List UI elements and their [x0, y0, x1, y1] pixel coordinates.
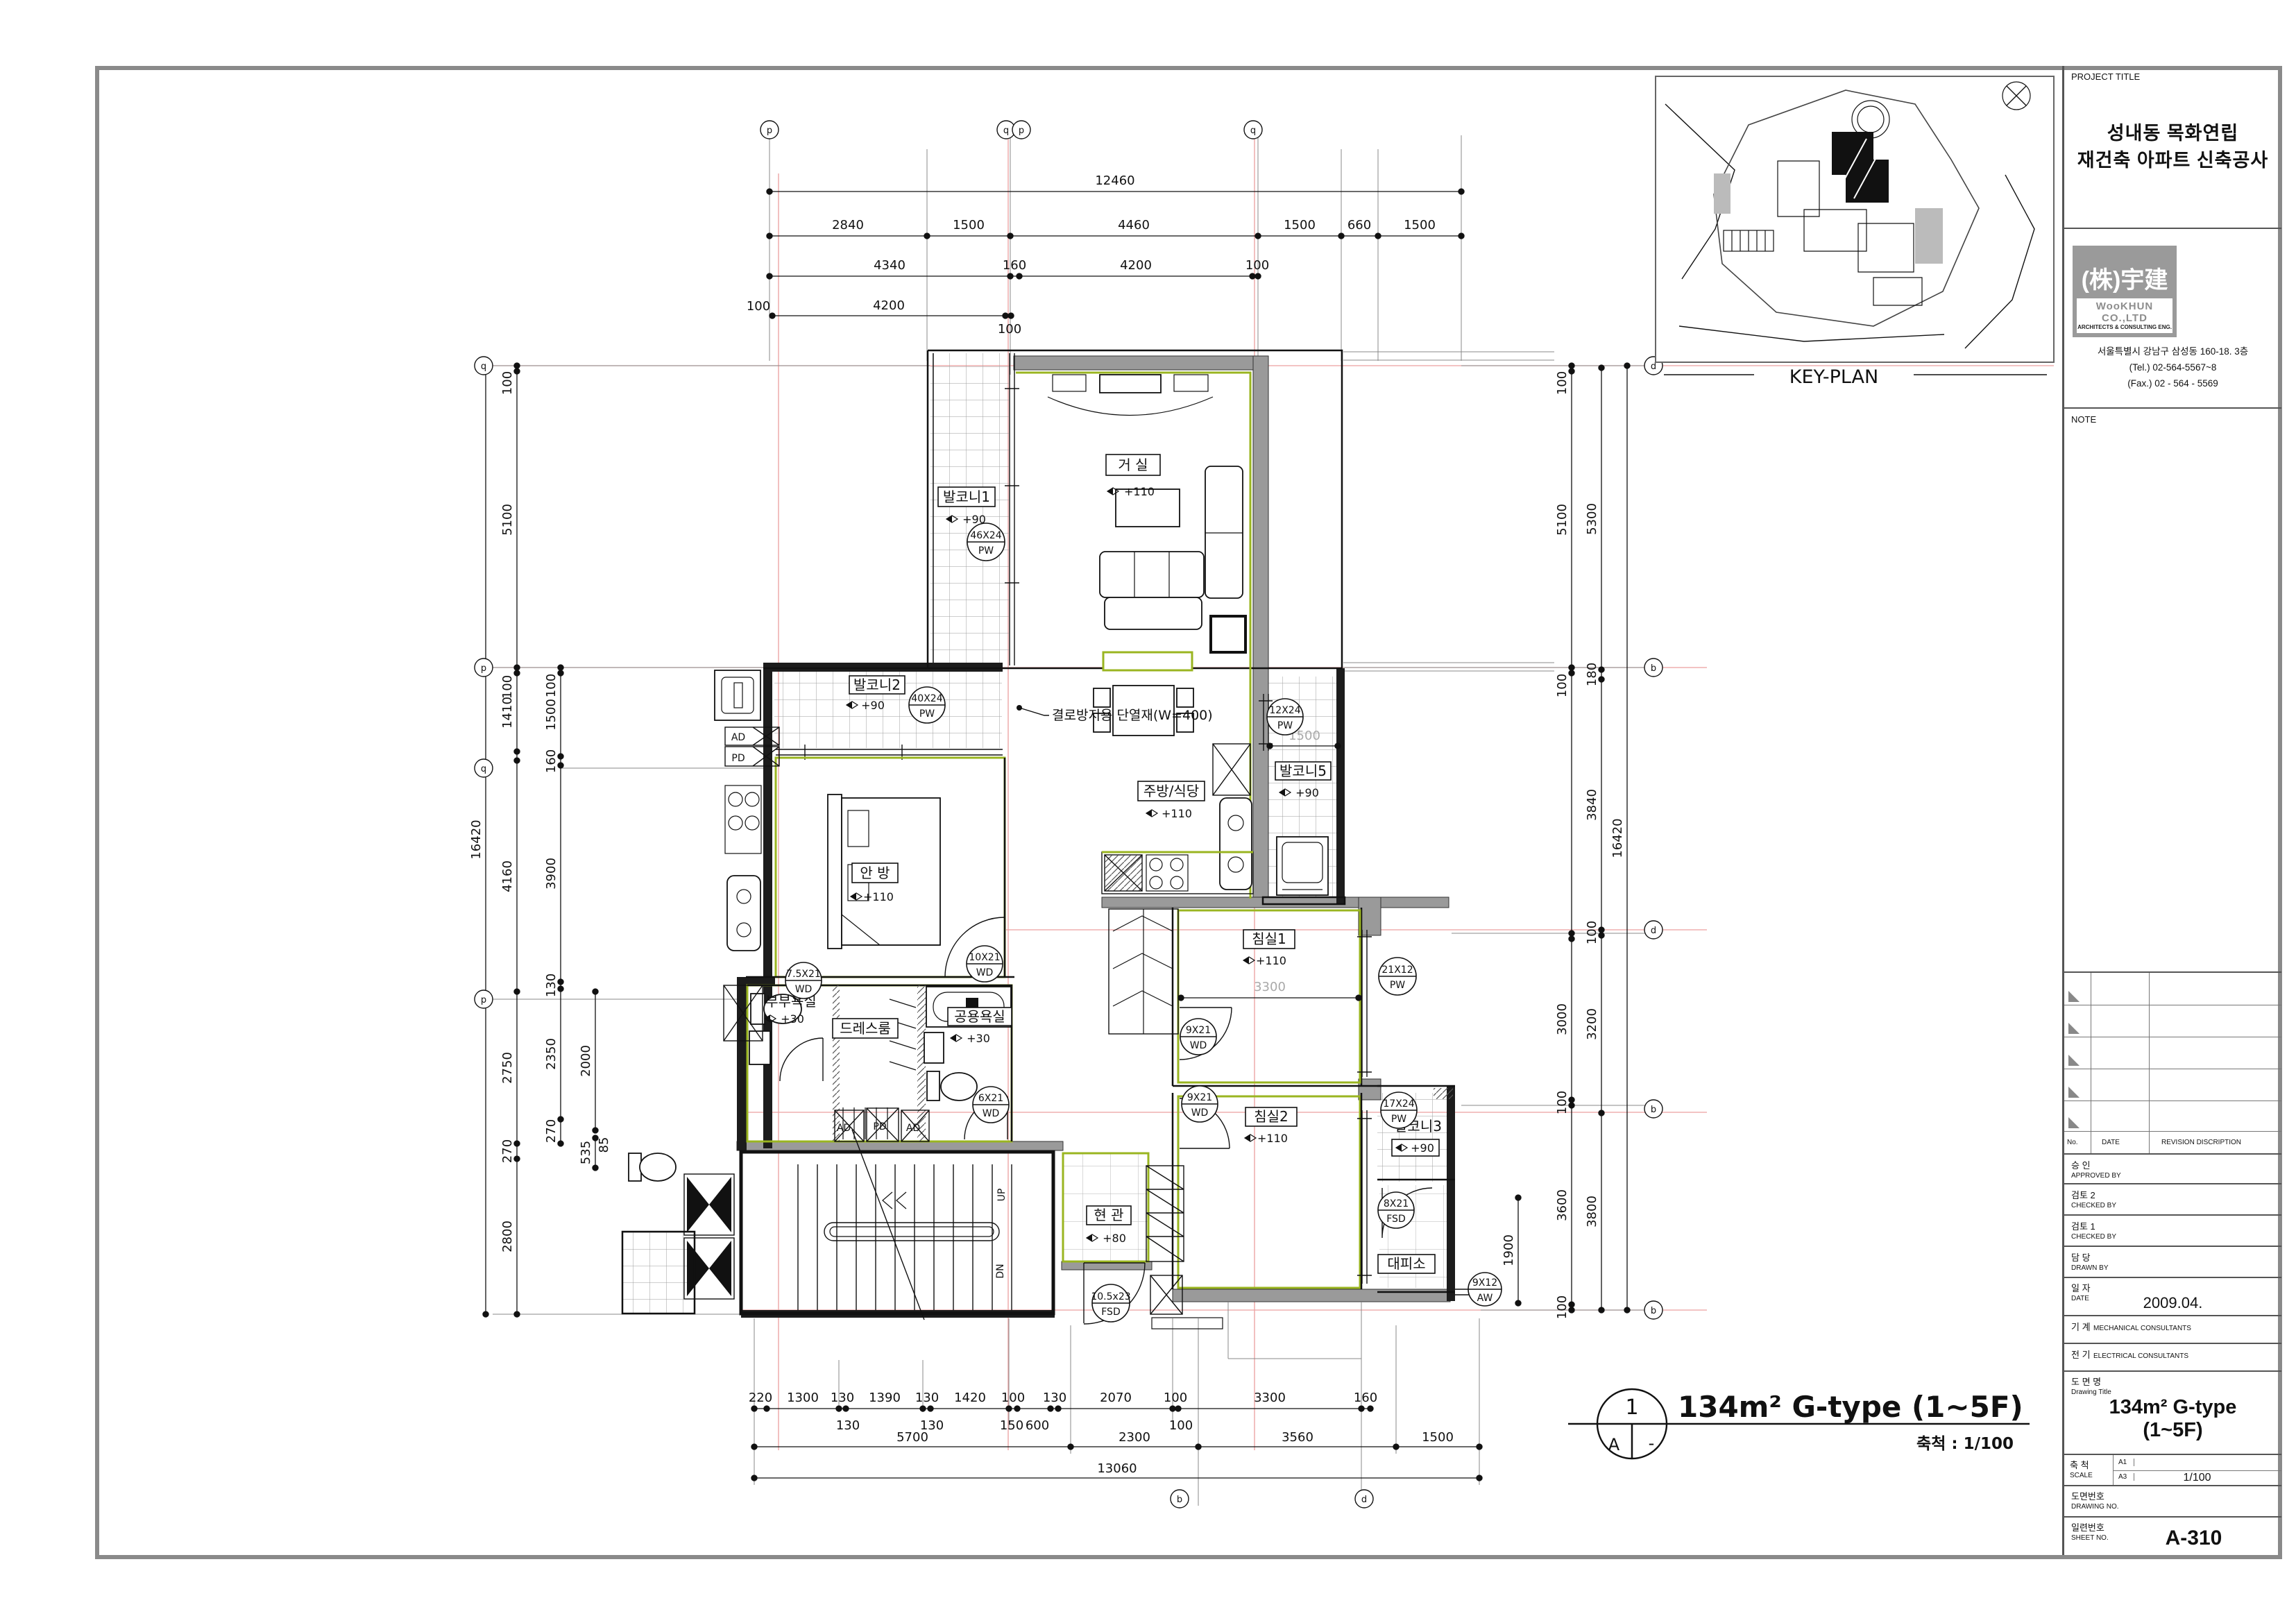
grid-label: p	[1019, 126, 1024, 136]
project-title-section: PROJECT TITLE 성내동 목화연립 재건축 아파트 신축공사	[2064, 66, 2281, 228]
level: +110	[863, 890, 894, 903]
approved-row: 승 인 APPROVED BY	[2064, 1153, 2281, 1183]
window-box	[1174, 375, 1208, 391]
dim: 2350	[544, 1038, 559, 1070]
tag: 9X12AW	[1468, 1273, 1502, 1306]
room-label: 침실2	[1254, 1108, 1289, 1125]
level: +110	[1256, 954, 1286, 967]
tag: 46X24PW	[967, 523, 1005, 561]
caption-scale: 축척 : 1/100	[1916, 1435, 2014, 1453]
room-label: 침실1	[1252, 931, 1286, 947]
duct-shafts: AD PD AD	[835, 1108, 929, 1141]
dim: 2300	[1119, 1430, 1150, 1445]
grid-label: q	[481, 362, 486, 372]
insulation-annotation: 결로방지용 단열재(W=400)	[1052, 708, 1213, 723]
dim: 5300	[1585, 503, 1599, 535]
dim: 3800	[1585, 1196, 1599, 1227]
dim: 16420	[1610, 818, 1625, 858]
dwgno-en: DRAWING NO.	[2064, 1503, 2281, 1511]
dim: 3300	[1254, 1391, 1286, 1405]
wall	[1447, 1086, 1455, 1301]
x-mark	[1213, 744, 1250, 795]
dim: 100	[544, 674, 559, 697]
firm-logo: (株)宇建 WooKHUN CO.,LTD ARCHITECTS & CONSU…	[2073, 246, 2177, 337]
dim: 100	[500, 675, 515, 699]
svg-text:PW: PW	[1391, 1114, 1406, 1125]
dim: 130	[1043, 1391, 1066, 1405]
dim: 85	[597, 1137, 611, 1153]
toilet	[941, 1073, 977, 1101]
tv-console	[1100, 375, 1161, 393]
kitchen-sink	[1220, 798, 1252, 890]
room-label: 발코니5	[1279, 763, 1327, 779]
dim: 100	[1555, 1295, 1570, 1319]
dim: 100	[1245, 258, 1269, 273]
entry-step	[1152, 1318, 1223, 1329]
room-label: 발코니2	[853, 677, 901, 693]
wall	[1336, 668, 1345, 904]
scale-en: SCALE	[2064, 1472, 2113, 1479]
svg-text:17X24: 17X24	[1383, 1098, 1414, 1110]
dim: 130	[544, 974, 559, 997]
level: +90	[861, 699, 885, 712]
mech-kr: 기 계	[2071, 1322, 2091, 1332]
level: +110	[1124, 485, 1155, 498]
keyplan-label: KEY-PLAN	[1789, 366, 1878, 388]
tag: 17X24PW	[1381, 1092, 1417, 1128]
stair-up-label: UP	[996, 1189, 1007, 1202]
ad-label: AD	[731, 732, 745, 743]
toilet-tank	[927, 1071, 939, 1101]
tag: 9X21WD	[1180, 1019, 1216, 1055]
dim: 130	[915, 1391, 939, 1405]
svg-text:WD: WD	[1191, 1107, 1209, 1119]
wardrobe-hangers	[1113, 909, 1173, 1034]
sofa-seats	[1105, 597, 1202, 629]
firm-section: (株)宇建 WooKHUN CO.,LTD ARCHITECTS & CONSU…	[2064, 228, 2281, 407]
rev-date-header: DATE	[2091, 1132, 2149, 1146]
scale-section: 축 척 SCALE A1 A3 1/100	[2064, 1454, 2281, 1485]
project-name-line1: 성내동 목화연립	[2064, 120, 2281, 147]
washer	[1277, 837, 1328, 895]
keyplan-shade	[1714, 173, 1730, 214]
tag: 40X24PW	[909, 687, 945, 723]
dim: 535	[579, 1141, 593, 1164]
firm-fax: (Fax.) 02 - 564 - 5569	[2064, 376, 2281, 392]
tag: 6X21WD	[973, 1087, 1009, 1123]
svg-text:PW: PW	[1277, 720, 1293, 731]
svg-text:WD: WD	[795, 984, 813, 995]
drawn-row: 담 당 DRAWN BY	[2064, 1246, 2281, 1277]
tag: 9X21WD	[1182, 1086, 1218, 1122]
dim: 130	[836, 1418, 860, 1433]
svg-text:FSD: FSD	[1386, 1214, 1405, 1225]
firm-subtitle: ARCHITECTS & CONSULTING ENG.	[2077, 324, 2172, 330]
side-table	[1211, 616, 1245, 652]
dim: 3560	[1282, 1430, 1313, 1445]
keyplan-shade	[1915, 208, 1943, 264]
sofa-main	[1100, 552, 1204, 597]
dim: 1500	[544, 699, 559, 731]
dim: 3900	[544, 858, 559, 890]
stair-rail-inner	[830, 1227, 994, 1237]
elec-kr: 전 기	[2071, 1350, 2091, 1360]
tag: 12X24PW	[1267, 699, 1303, 735]
tag: 8X21FSD	[1378, 1192, 1414, 1228]
dimensions-bottom: 220 1300 130 1390 130 1420 100 130 2070 …	[749, 1391, 1479, 1478]
dim: 16420	[469, 819, 484, 859]
firm-logo-mark: (株)宇建	[2073, 246, 2177, 295]
svg-text:7.5X21: 7.5X21	[786, 969, 821, 980]
room-label: 공용욕실	[954, 1008, 1005, 1025]
grid-label: p	[481, 995, 486, 1005]
svg-text:FSD: FSD	[1101, 1307, 1120, 1318]
dim: 270	[500, 1139, 515, 1163]
mech-row: 기 계 MECHANICAL CONSULTANTS	[2064, 1315, 2281, 1343]
sheet-kr: 일련번호	[2071, 1522, 2104, 1533]
dim: 1410	[500, 697, 515, 729]
dim: 100	[1169, 1418, 1193, 1433]
svg-text:6X21: 6X21	[978, 1093, 1003, 1104]
stair-arrow	[883, 1192, 906, 1209]
dimensions-top: 12460 2840 1500 4460 1500 660 1500 4340 …	[747, 173, 1461, 337]
grid-label: q	[481, 764, 486, 774]
sheet-no-section: 일련번호 SHEET NO. A-310	[2064, 1516, 2281, 1555]
sofa-chaise	[1205, 466, 1243, 598]
dim: 100	[1555, 371, 1570, 395]
grid-label: d	[1651, 926, 1656, 936]
dim: 3000	[1555, 1003, 1570, 1035]
dim: 1500	[1422, 1430, 1454, 1445]
firm-name: WooKHUN CO.,LTD	[2077, 300, 2172, 324]
dim: 1900	[1502, 1234, 1516, 1266]
dim: 3600	[1555, 1189, 1570, 1221]
couple-bath-door	[780, 1038, 823, 1081]
svg-text:9X12: 9X12	[1472, 1277, 1497, 1289]
dim: 100	[998, 322, 1021, 337]
dim: 2070	[1100, 1391, 1132, 1405]
dim: 100	[1001, 1391, 1025, 1405]
room-label: 발코니1	[943, 488, 990, 505]
note-label: NOTE	[2064, 409, 2281, 425]
firm-address: 서울특별시 강남구 삼성동 160-18. 3층	[2064, 344, 2281, 360]
grid-label: b	[1651, 1306, 1656, 1316]
grid-label: d	[1651, 362, 1656, 372]
level: +90	[1411, 1141, 1434, 1155]
grid-label: b	[1651, 1105, 1656, 1115]
room-label: 대피소	[1387, 1255, 1425, 1272]
dim: 2750	[500, 1052, 515, 1084]
svg-text:9X21: 9X21	[1187, 1092, 1212, 1103]
dim: 1500	[1404, 218, 1436, 232]
dim: 5100	[1555, 504, 1570, 536]
ad-label: AD	[837, 1123, 851, 1134]
elec-en: ELECTRICAL CONSULTANTS	[2093, 1352, 2188, 1360]
dim: 100	[1555, 674, 1570, 697]
dim: 160	[1003, 258, 1026, 273]
dim: 100	[1164, 1391, 1187, 1405]
rev-no-header: No.	[2064, 1132, 2091, 1146]
caption-title: 134m² G-type (1~5F)	[1678, 1390, 2023, 1424]
dim: 2800	[500, 1221, 515, 1252]
level: +110	[1162, 807, 1192, 820]
dim: 5700	[896, 1430, 928, 1445]
wall	[1014, 356, 1256, 370]
dim: 13060	[1097, 1461, 1137, 1476]
dim: 100	[747, 299, 770, 314]
drawing-caption: 1 A - 134m² G-type (1~5F) 축척 : 1/100	[1568, 1389, 2030, 1459]
dim: 3200	[1585, 1008, 1599, 1040]
dwg-title-line1: 134m² G-type	[2064, 1396, 2281, 1419]
level: +110	[1257, 1132, 1288, 1145]
tag: 10.5x23FSD	[1091, 1284, 1130, 1322]
svg-text:WD: WD	[983, 1108, 1000, 1119]
caption-dash: -	[1649, 1434, 1655, 1453]
drawing-title-section: 도 면 명 Drawing Title 134m² G-type (1~5F)	[2064, 1370, 2281, 1454]
title-block: PROJECT TITLE 성내동 목화연립 재건축 아파트 신축공사 (株)宇…	[2062, 66, 2281, 1555]
dim: 2000	[579, 1045, 593, 1077]
section-break	[852, 1130, 924, 1320]
project-title-label: PROJECT TITLE	[2064, 66, 2281, 82]
dim: 160	[544, 749, 559, 773]
room-label: 드레스룸	[840, 1020, 891, 1037]
window-box	[1053, 375, 1086, 391]
wall	[1173, 1289, 1450, 1302]
checked1-en: CHECKED BY	[2064, 1233, 2281, 1241]
dim: 150	[1000, 1418, 1023, 1433]
checked2-row: 검토 2 CHECKED BY	[2064, 1183, 2281, 1214]
dim: 220	[749, 1391, 772, 1405]
wall	[1253, 668, 1268, 904]
checked1-row: 검토 1 CHECKED BY	[2064, 1214, 2281, 1246]
dim: 100	[500, 371, 515, 395]
grid-label: b	[1177, 1495, 1182, 1505]
rev-desc-header: REVISION DISCRIPTION	[2161, 1139, 2241, 1146]
room-label: 주방/식당	[1143, 783, 1199, 799]
level: +80	[1103, 1232, 1126, 1245]
room-label: 거 실	[1118, 457, 1148, 473]
pd-label: PD	[731, 753, 745, 764]
level: +90	[1295, 786, 1319, 799]
grid-label: p	[481, 663, 486, 674]
note-section: NOTE	[2064, 407, 2281, 971]
scale-kr: 축 척	[2070, 1460, 2089, 1470]
grid-label: q	[1250, 126, 1256, 136]
svg-text:AW: AW	[1477, 1293, 1493, 1304]
plan-canvas: 12460 2840 1500 4460 1500 660 1500 4340 …	[0, 0, 2296, 1623]
date-row: 일 자 DATE 2009.04.	[2064, 1277, 2281, 1315]
grid-label: d	[1361, 1495, 1367, 1505]
wall	[1102, 897, 1449, 908]
dimensions-right: 100 5100 100 3000 100 3600 100 5300 180 …	[1502, 366, 1627, 1319]
tag: 10X21WD	[967, 946, 1003, 982]
svg-text:21X12: 21X12	[1381, 965, 1413, 976]
wall	[737, 1141, 1063, 1150]
dim: 4200	[873, 298, 905, 313]
stair-walls	[741, 1152, 1053, 1314]
project-name-line2: 재건축 아파트 신축공사	[2064, 147, 2281, 174]
caption-number: 1	[1625, 1395, 1638, 1420]
dim: 3840	[1585, 789, 1599, 821]
chair	[1094, 688, 1110, 707]
grid-label: b	[1651, 663, 1656, 674]
svg-text:46X24: 46X24	[970, 530, 1001, 541]
dimensions-left: 16420 100 5100 100 1410 4160 2750 270 28…	[469, 366, 611, 1314]
checked2-kr: 검토 2	[2071, 1190, 2095, 1200]
floor-plan: AD PD AD 3300 1500 UP DN	[622, 350, 1499, 1359]
dim-gray: 3300	[1254, 980, 1286, 994]
sideboard	[1103, 652, 1192, 670]
dwg-title-en: Drawing Title	[2064, 1388, 2281, 1396]
level: +30	[781, 1012, 804, 1026]
svg-text:8X21: 8X21	[1384, 1198, 1409, 1209]
dim: 270	[544, 1119, 559, 1143]
dim: 1390	[869, 1391, 901, 1405]
chair	[1177, 688, 1193, 707]
grid-label: p	[767, 126, 772, 136]
dim: 4460	[1118, 218, 1150, 232]
stair-treads	[798, 1164, 1012, 1310]
dim: 4160	[500, 860, 515, 892]
caption-sheet-letter: A	[1608, 1435, 1620, 1454]
curtain-arc	[1048, 397, 1213, 416]
tag: 21X12PW	[1379, 958, 1416, 995]
wall	[763, 663, 1003, 672]
neighbor-unit: AD PD	[622, 670, 779, 1314]
svg-text:PW: PW	[978, 545, 994, 556]
scale-a1: A1	[2118, 1459, 2134, 1466]
pd-label: PD	[873, 1121, 886, 1132]
svg-text:10.5x23: 10.5x23	[1091, 1291, 1130, 1302]
dim: 1300	[787, 1391, 819, 1405]
bed-headboard	[828, 794, 842, 949]
dwgno-kr: 도면번호	[2071, 1491, 2104, 1502]
dim: 12460	[1095, 173, 1134, 188]
key-plan: KEY-PLAN	[1656, 76, 2054, 388]
grid-label: q	[1003, 126, 1009, 136]
dim: 1500	[1284, 218, 1316, 232]
dwg-title-kr: 도 면 명	[2071, 1377, 2101, 1387]
svg-text:9X21: 9X21	[1186, 1025, 1211, 1036]
date-kr: 일 자	[2071, 1283, 2091, 1293]
scale-value: 1/100	[2113, 1472, 2281, 1484]
svg-text:WD: WD	[976, 967, 994, 978]
dim: 100	[1555, 1091, 1570, 1114]
dim: 660	[1347, 218, 1371, 232]
balcony1-tiles	[930, 353, 1009, 665]
elec-row: 전 기 ELECTRICAL CONSULTANTS	[2064, 1343, 2281, 1370]
dim: 600	[1026, 1418, 1049, 1433]
date-value: 2009.04.	[2064, 1294, 2281, 1312]
dim: 130	[831, 1391, 854, 1405]
drawn-kr: 담 당	[2071, 1252, 2091, 1263]
drawing-sheet: 12460 2840 1500 4460 1500 660 1500 4340 …	[0, 0, 2296, 1623]
dim: 1420	[954, 1391, 986, 1405]
drawn-en: DRAWN BY	[2064, 1264, 2281, 1272]
checked2-en: CHECKED BY	[2064, 1202, 2281, 1209]
dim: 2840	[832, 218, 864, 232]
checked1-kr: 검토 1	[2071, 1221, 2095, 1232]
ad-label: AD	[906, 1123, 920, 1134]
dim: 100	[1585, 921, 1599, 944]
dim: 4200	[1120, 258, 1152, 273]
wall	[1434, 1088, 1453, 1099]
revision-section: No. DATE REVISION DISCRIPTION	[2064, 971, 2281, 1153]
drawing-no-section: 도면번호 DRAWING NO.	[2064, 1485, 2281, 1516]
wall	[737, 977, 775, 985]
room-label: 안 방	[860, 865, 890, 881]
svg-text:40X24: 40X24	[911, 693, 942, 704]
wall	[737, 977, 747, 1150]
svg-text:12X24: 12X24	[1269, 705, 1300, 716]
sink	[924, 1033, 944, 1063]
wall	[833, 985, 840, 1141]
level: +30	[967, 1032, 990, 1045]
dim: 180	[1585, 663, 1599, 686]
stair-dn-label: DN	[995, 1264, 1006, 1278]
approved-kr: 승 인	[2071, 1160, 2091, 1171]
approved-en: APPROVED BY	[2064, 1172, 2281, 1180]
firm-tel: (Tel.) 02-564-5567~8	[2064, 360, 2281, 376]
dim: 160	[1354, 1391, 1377, 1405]
tag: 7.5X21WD	[785, 962, 822, 999]
dim: 5100	[500, 504, 515, 536]
svg-text:10X21: 10X21	[969, 952, 1000, 963]
dim: 1500	[953, 218, 985, 232]
dim: 4340	[874, 258, 905, 273]
wall	[1253, 356, 1268, 668]
dwg-title-line2: (1~5F)	[2064, 1419, 2281, 1442]
room-label: 현 관	[1094, 1207, 1123, 1223]
svg-text:PW: PW	[919, 708, 935, 720]
svg-text:PW: PW	[1390, 980, 1405, 991]
svg-text:WD: WD	[1190, 1040, 1207, 1051]
mech-en: MECHANICAL CONSULTANTS	[2093, 1325, 2191, 1332]
